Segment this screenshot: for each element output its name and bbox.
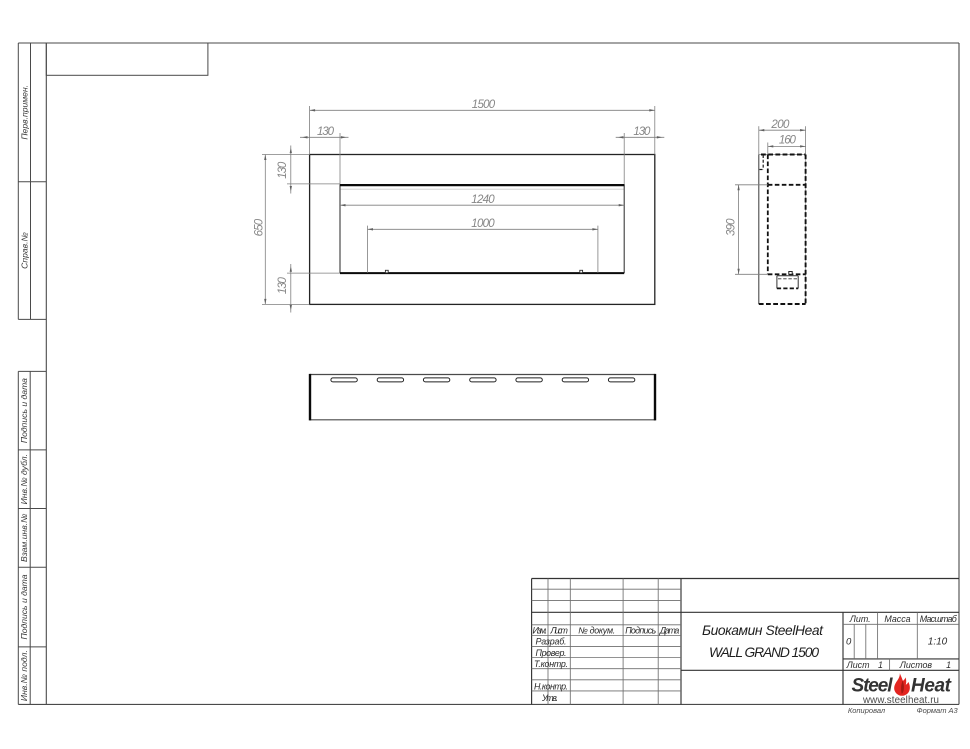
svg-text:Взам.инв.№: Взам.инв.№ <box>19 514 29 562</box>
svg-text:WALL GRAND 1500: WALL GRAND 1500 <box>709 645 819 660</box>
svg-text:Формат А3: Формат А3 <box>917 706 959 715</box>
svg-text:0: 0 <box>846 637 852 648</box>
svg-text:№ докум.: № докум. <box>578 626 615 636</box>
svg-text:1000: 1000 <box>471 218 495 230</box>
svg-text:Лит.: Лит. <box>849 614 871 624</box>
svg-text:Копировал: Копировал <box>848 706 886 715</box>
svg-text:Подпись: Подпись <box>625 626 656 636</box>
svg-text:Steel: Steel <box>852 676 894 697</box>
svg-text:Лист: Лист <box>549 626 568 636</box>
svg-text:130: 130 <box>317 126 335 138</box>
svg-text:Листов: Листов <box>899 660 933 670</box>
svg-text:Провер.: Провер. <box>536 648 567 658</box>
svg-text:Масса: Масса <box>884 614 910 624</box>
svg-text:130: 130 <box>277 161 289 179</box>
svg-text:Инв.№ подл.: Инв.№ подл. <box>19 650 29 701</box>
svg-text:Инв.№ дубл.: Инв.№ дубл. <box>19 454 29 504</box>
svg-text:130: 130 <box>277 277 289 295</box>
svg-text:1240: 1240 <box>471 194 495 206</box>
svg-text:390: 390 <box>725 218 737 236</box>
svg-text:Изм.: Изм. <box>533 626 548 636</box>
svg-text:Подпись и дата: Подпись и дата <box>19 378 29 443</box>
svg-text:www.steelheat.ru: www.steelheat.ru <box>862 695 939 706</box>
svg-text:1500: 1500 <box>472 99 496 111</box>
svg-text:Разраб.: Разраб. <box>536 637 567 647</box>
svg-text:Биокамин SteelHeat: Биокамин SteelHeat <box>702 623 824 638</box>
svg-text:Heat: Heat <box>911 676 952 697</box>
svg-text:Подпись и дата: Подпись и дата <box>19 574 29 639</box>
svg-text:Утв.: Утв. <box>541 693 558 703</box>
svg-text:130: 130 <box>633 126 651 138</box>
svg-text:Т.контр.: Т.контр. <box>534 659 568 669</box>
svg-text:650: 650 <box>253 218 265 236</box>
svg-text:Лист: Лист <box>846 660 870 670</box>
svg-text:Масштаб: Масштаб <box>920 614 958 624</box>
svg-text:1:10: 1:10 <box>928 637 948 648</box>
svg-text:Дата: Дата <box>659 626 680 636</box>
svg-text:160: 160 <box>779 134 797 146</box>
svg-text:200: 200 <box>770 119 790 131</box>
svg-text:Перв.примен.: Перв.примен. <box>19 85 29 140</box>
svg-text:1: 1 <box>946 660 951 670</box>
svg-text:Н.контр.: Н.контр. <box>534 681 568 691</box>
svg-text:1: 1 <box>878 660 883 670</box>
svg-text:Справ.№: Справ.№ <box>19 232 29 269</box>
